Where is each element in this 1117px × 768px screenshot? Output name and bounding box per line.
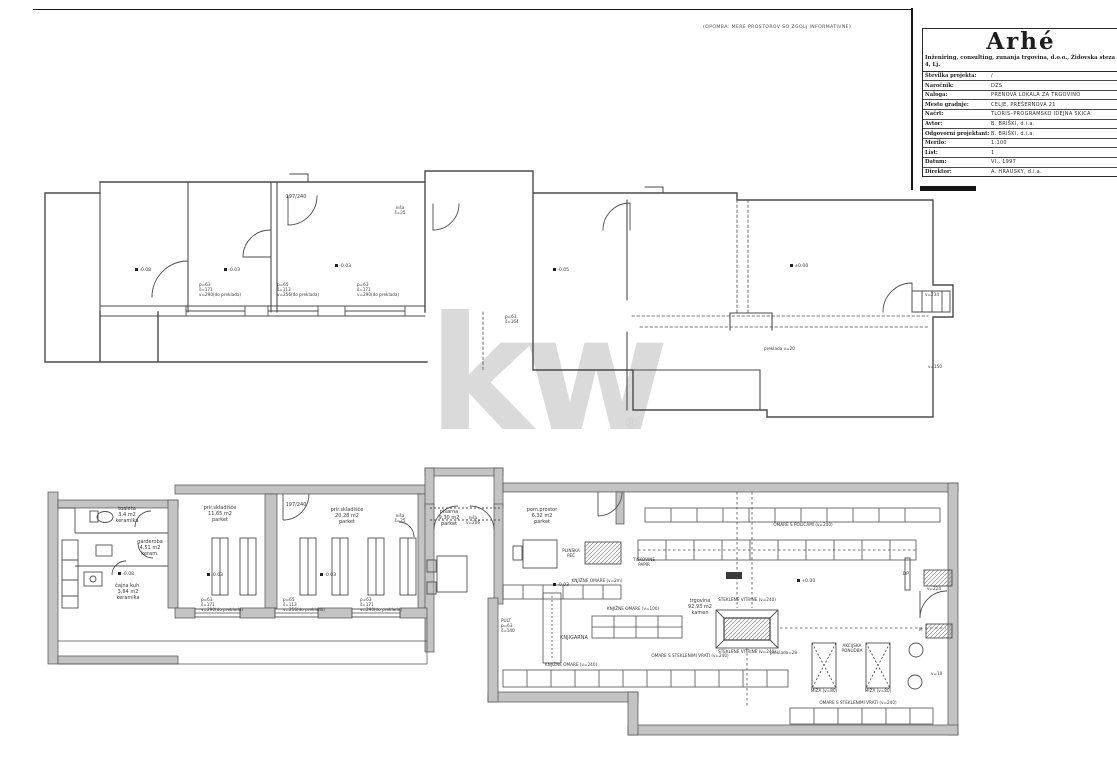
- scanned-floor-plan-sheet: { "meta": { "note": "(OPOMBA: MERE PROST…: [0, 0, 1117, 768]
- top-floor-plan: [45, 171, 953, 417]
- floor-plans-linework: [0, 0, 1117, 768]
- bottom-floor-plan: [48, 468, 958, 735]
